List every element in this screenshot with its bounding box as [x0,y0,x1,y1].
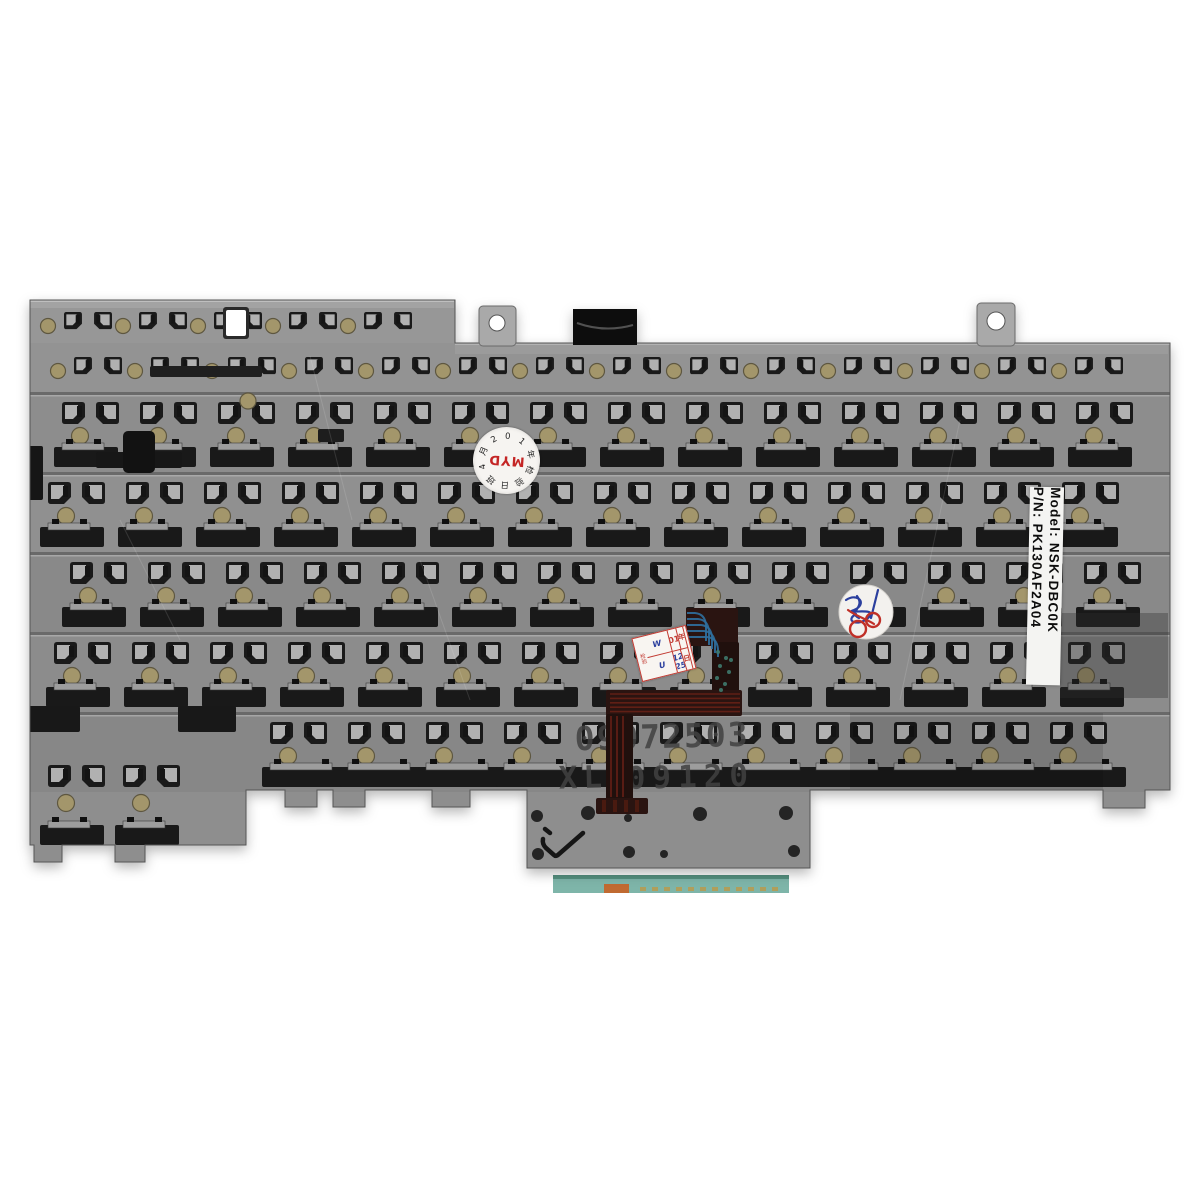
stamped-serial-number: 09072503 [574,715,750,759]
myd-ring-character: 0 [505,433,511,442]
myd-ring-character: 年 [524,450,534,460]
backplate-graphic: 09072503XL09120 [0,0,1200,1200]
myd-ring-character: 1 [517,438,527,448]
myd-ring-character: 4 [479,463,489,470]
myd-ring-character: 检 [523,464,534,475]
myd-ring-character: 2 [489,436,498,446]
myd-ring-character: 验 [513,475,525,487]
stamped-batch-number: 09120 [626,758,755,797]
keyboard-backplate-photo: 09072503XL09120 Model: NSK-DBC0K P/N: PK… [0,0,1200,1200]
myd-ring-character: 班 [485,473,497,485]
qc-scribble-sticker [839,585,893,639]
membrane-connector-edge [553,875,789,893]
myd-ring-character: 日 [500,479,509,488]
part-number-label: Model: NSK-DBC0K P/N: PK130AF2A04 [1026,487,1064,686]
stamped-batch-prefix: XL [558,759,608,796]
myd-sticker-text: MYD [488,452,525,469]
